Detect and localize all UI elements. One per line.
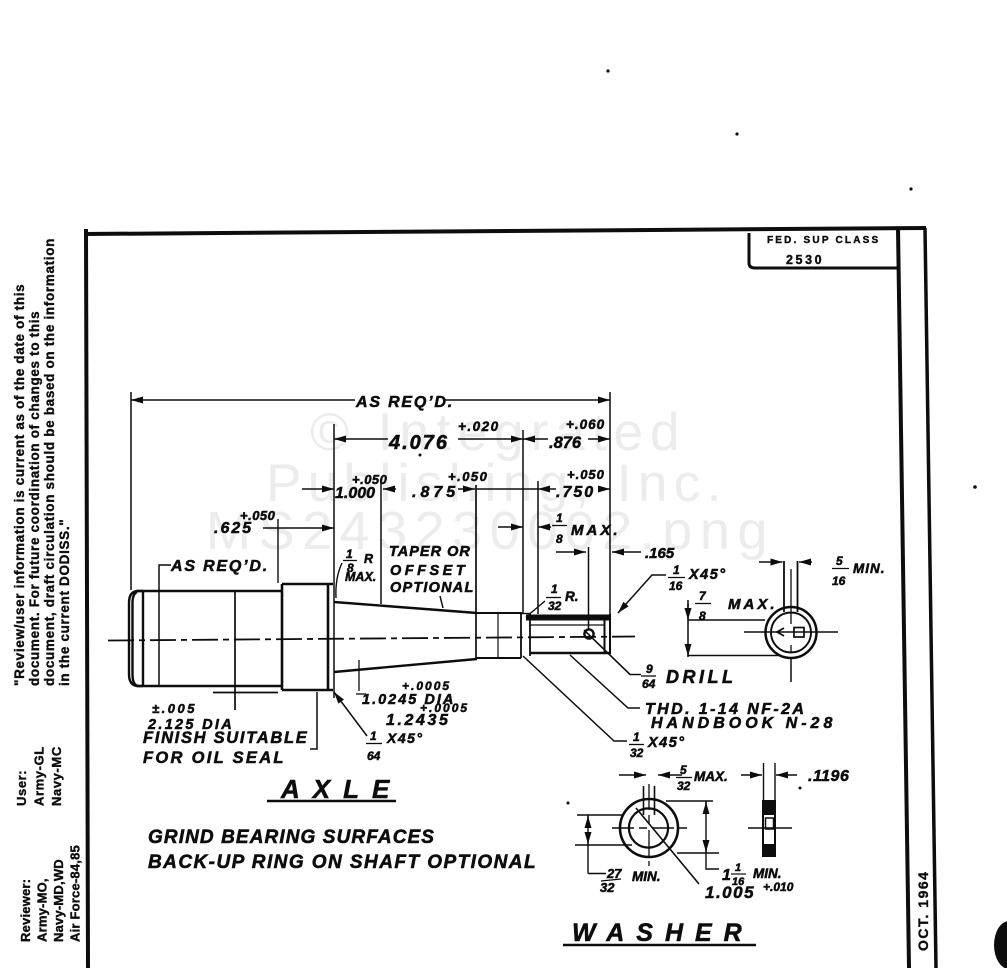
svg-text:32: 32 bbox=[677, 779, 691, 793]
svg-text:R.: R. bbox=[565, 589, 579, 604]
svg-text:X45°: X45° bbox=[386, 730, 424, 746]
svg-text:+.0005: +.0005 bbox=[402, 679, 451, 693]
svg-text:"Review/user information is cu: "Review/user information is current as o… bbox=[12, 284, 27, 686]
svg-text:.876: .876 bbox=[549, 434, 582, 452]
svg-text:16: 16 bbox=[669, 579, 683, 593]
svg-text:FINISH SUITABLE: FINISH SUITABLE bbox=[143, 729, 308, 747]
svg-text:FED. SUP CLASS: FED. SUP CLASS bbox=[767, 235, 880, 246]
svg-text:DRILL: DRILL bbox=[666, 667, 737, 687]
svg-text:User:: User: bbox=[14, 770, 29, 806]
svg-text:MAX.: MAX. bbox=[694, 769, 728, 784]
svg-text:1.000: 1.000 bbox=[335, 485, 375, 502]
svg-text:Army-MO,: Army-MO, bbox=[35, 878, 50, 942]
svg-text:MS243230002.png: MS243230002.png bbox=[206, 501, 775, 561]
svg-text:1: 1 bbox=[346, 547, 353, 561]
svg-text:FOR OIL SEAL: FOR OIL SEAL bbox=[143, 749, 286, 767]
svg-text:1.2435: 1.2435 bbox=[386, 712, 451, 729]
svg-text:+.050: +.050 bbox=[352, 472, 388, 487]
svg-text:OPTIONAL: OPTIONAL bbox=[390, 580, 475, 596]
svg-text:1: 1 bbox=[556, 511, 563, 525]
svg-text:32: 32 bbox=[600, 880, 615, 895]
svg-text:BACK-UP RING ON SHAFT OPTIONAL: BACK-UP RING ON SHAFT OPTIONAL bbox=[148, 852, 537, 873]
svg-text:.165: .165 bbox=[645, 545, 675, 562]
svg-text:5: 5 bbox=[836, 554, 843, 568]
svg-text:Army-GL: Army-GL bbox=[32, 746, 47, 806]
svg-text:1: 1 bbox=[735, 862, 741, 874]
svg-text:16: 16 bbox=[832, 574, 846, 588]
svg-text:MAX.: MAX. bbox=[728, 596, 778, 613]
svg-text:+.050: +.050 bbox=[240, 508, 276, 523]
svg-text:32: 32 bbox=[630, 746, 644, 760]
svg-text:1.005: 1.005 bbox=[705, 883, 755, 902]
svg-text:AS REQ’D.: AS REQ’D. bbox=[355, 394, 454, 411]
svg-text:in the current DODISS.": in the current DODISS." bbox=[57, 519, 72, 686]
svg-text:1: 1 bbox=[722, 867, 731, 884]
svg-text:Air Force-84,85: Air Force-84,85 bbox=[68, 845, 83, 942]
svg-text:+.060: +.060 bbox=[566, 417, 605, 432]
svg-text:Navy-MC: Navy-MC bbox=[49, 746, 64, 806]
svg-text:MIN.: MIN. bbox=[632, 869, 661, 884]
svg-text:8: 8 bbox=[699, 609, 706, 623]
svg-text:1: 1 bbox=[370, 729, 377, 743]
svg-text:MIN.: MIN. bbox=[853, 561, 886, 576]
svg-text:OCT. 1964: OCT. 1964 bbox=[915, 871, 931, 951]
svg-text:+.050: +.050 bbox=[567, 467, 605, 482]
svg-text:5: 5 bbox=[680, 763, 687, 777]
svg-text:1: 1 bbox=[551, 582, 558, 596]
svg-text:MAX.: MAX. bbox=[345, 570, 376, 584]
svg-text:WASHER: WASHER bbox=[572, 919, 754, 947]
svg-text:AS REQ’D.: AS REQ’D. bbox=[170, 558, 269, 575]
svg-text:AXLE: AXLE bbox=[280, 774, 402, 804]
svg-text:64: 64 bbox=[642, 677, 656, 691]
svg-text:.1196: .1196 bbox=[808, 768, 849, 785]
svg-text:TAPER OR: TAPER OR bbox=[389, 544, 471, 560]
svg-text:32: 32 bbox=[548, 599, 562, 613]
svg-text:R: R bbox=[364, 552, 373, 566]
svg-text:+.020: +.020 bbox=[458, 419, 500, 434]
svg-text:Navy-MD,WD: Navy-MD,WD bbox=[51, 859, 66, 942]
svg-text:2530: 2530 bbox=[786, 253, 824, 267]
svg-text:+.010: +.010 bbox=[763, 880, 794, 894]
svg-text:HANDBOOK N-28: HANDBOOK N-28 bbox=[651, 715, 836, 732]
svg-text:Reviewer:: Reviewer: bbox=[18, 879, 33, 942]
svg-text:±.005: ±.005 bbox=[152, 701, 197, 716]
svg-text:4.076: 4.076 bbox=[388, 432, 449, 454]
svg-text:GRIND BEARING SURFACES: GRIND BEARING SURFACES bbox=[148, 827, 435, 848]
svg-text:7: 7 bbox=[699, 589, 707, 603]
svg-text:X45°: X45° bbox=[688, 567, 727, 583]
svg-text:.750: .750 bbox=[556, 484, 595, 501]
svg-text:64: 64 bbox=[367, 749, 381, 763]
svg-text:1: 1 bbox=[633, 730, 640, 744]
svg-text:1: 1 bbox=[673, 563, 680, 577]
svg-text:MIN.: MIN. bbox=[753, 866, 782, 881]
svg-text:MAX.: MAX. bbox=[571, 522, 621, 539]
svg-text:9: 9 bbox=[646, 662, 653, 676]
svg-text:+.050: +.050 bbox=[448, 469, 488, 484]
svg-text:document. For future coordinat: document. For future coordination of cha… bbox=[27, 311, 42, 686]
svg-text:.875: .875 bbox=[412, 484, 459, 501]
svg-text:8: 8 bbox=[556, 532, 563, 546]
svg-text:OFFSET: OFFSET bbox=[390, 563, 468, 579]
svg-text:X45°: X45° bbox=[647, 735, 686, 751]
svg-text:document, draft circulation sh: document, draft circulation should be ba… bbox=[42, 238, 57, 686]
